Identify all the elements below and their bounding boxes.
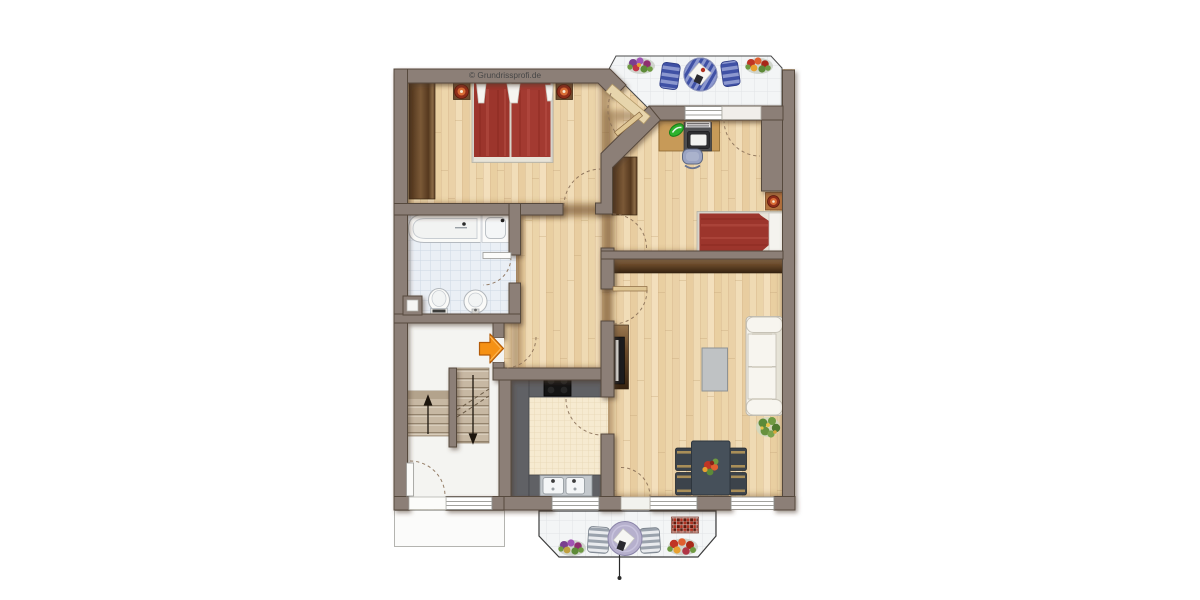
svg-text:© Grundrissprofi.de: © Grundrissprofi.de bbox=[469, 70, 541, 80]
